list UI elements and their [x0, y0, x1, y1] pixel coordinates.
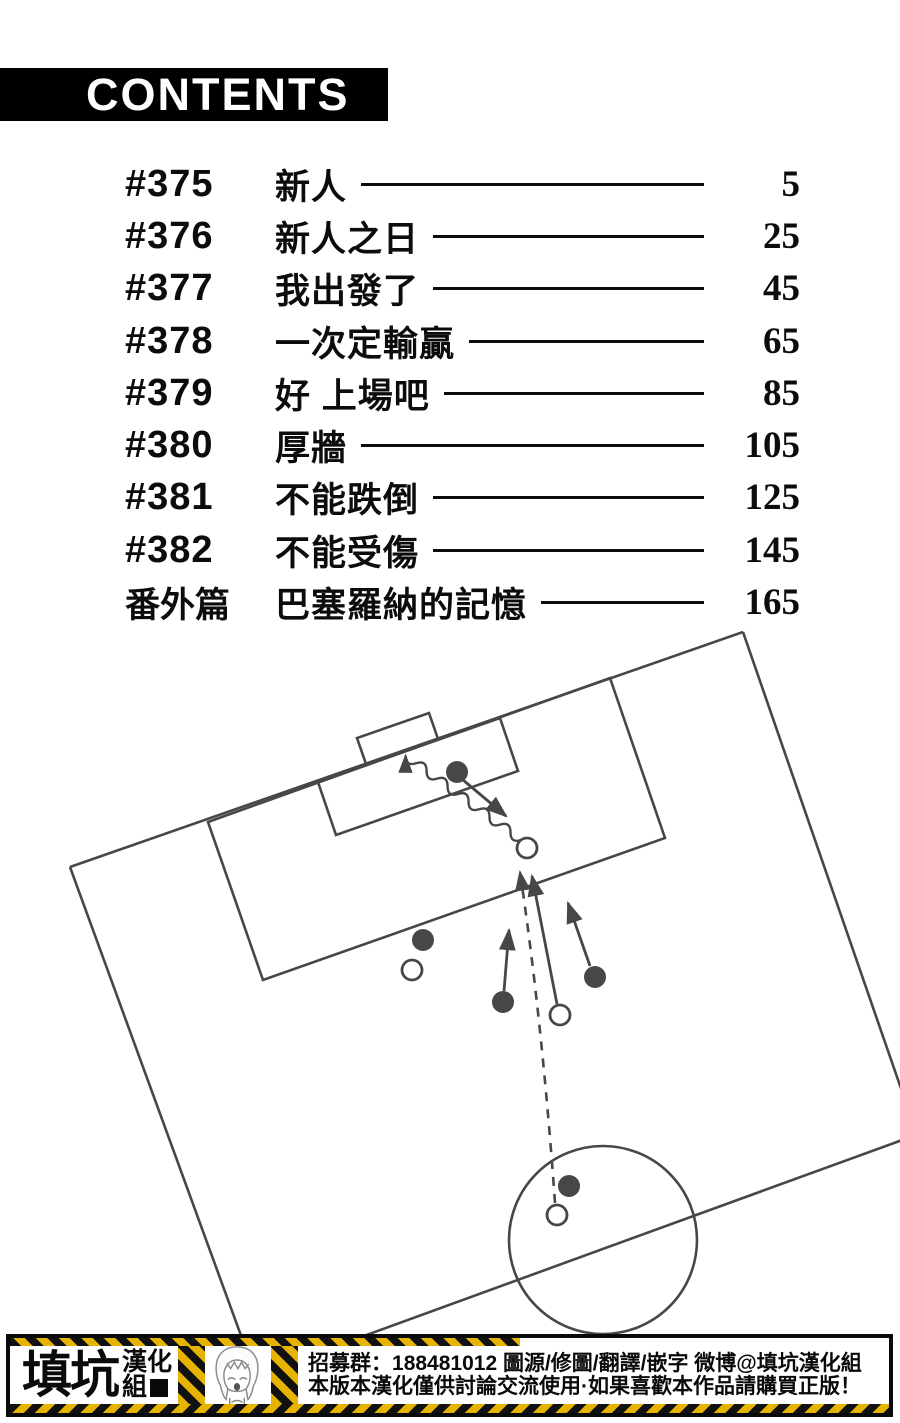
- soccer-tactics-diagram: [0, 618, 900, 1335]
- leader-line: [433, 235, 704, 238]
- table-of-contents: #375 新人 5 #376 新人之日 25 #377 我出發了 45 #378…: [0, 158, 800, 629]
- toc-row: #380 厚牆 105: [0, 419, 800, 471]
- group-logo-main: 填坑: [22, 1350, 118, 1400]
- chapter-title: 新人: [275, 159, 347, 210]
- credit-line-1: 招募群：188481012 圖源/修圖/翻譯/嵌字 微博@填坑漢化組: [308, 1352, 862, 1375]
- group-logo-sub2: 組: [122, 1375, 147, 1400]
- contents-header-bar: CONTENTS: [0, 68, 388, 121]
- page-title: CONTENTS: [86, 69, 350, 121]
- movement-arrows: [403, 752, 590, 1203]
- hazard-stripe-bar: [271, 1346, 298, 1404]
- scanlation-credit-box: 填坑 漢化 組: [6, 1334, 893, 1417]
- toc-row: #377 我出發了 45: [0, 263, 800, 315]
- chapter-number: #376: [125, 215, 275, 258]
- hazard-stripe-bar: [178, 1346, 205, 1404]
- chapter-number: #377: [125, 267, 275, 310]
- leader-line: [433, 549, 704, 552]
- manga-contents-page: CONTENTS #375 新人 5 #376 新人之日 25 #377 我出發…: [0, 0, 900, 1423]
- chapter-page-number: 85: [714, 372, 800, 415]
- chapter-number: #375: [125, 163, 275, 206]
- hazard-stripe-bottom: [10, 1404, 889, 1413]
- chapter-page-number: 45: [714, 267, 800, 310]
- leader-line: [469, 340, 704, 343]
- leader-line: [361, 183, 704, 186]
- chapter-number: #382: [125, 529, 275, 572]
- chapter-title: 一次定輸贏: [275, 316, 455, 367]
- chapter-title: 我出發了: [275, 263, 419, 314]
- toc-row: #381 不能跌倒 125: [0, 472, 800, 524]
- field-lines: [70, 632, 900, 1335]
- toc-row: #382 不能受傷 145: [0, 524, 800, 576]
- chapter-number: #380: [125, 424, 275, 467]
- credit-line-2: 本版本漢化僅供討論交流使用·如果喜歡本作品請購買正版！: [308, 1375, 862, 1398]
- leader-line: [444, 392, 704, 395]
- chapter-title: 不能跌倒: [275, 472, 419, 523]
- leader-line: [433, 287, 704, 290]
- toc-row: #376 新人之日 25: [0, 210, 800, 262]
- chapter-page-number: 25: [714, 215, 800, 258]
- group-logo-sub1: 漢化: [122, 1350, 172, 1375]
- players: [402, 761, 606, 1225]
- leader-line: [361, 444, 704, 447]
- chapter-number: #379: [125, 372, 275, 415]
- toc-row: #378 一次定輸贏 65: [0, 315, 800, 367]
- chapter-number: #378: [125, 320, 275, 363]
- chapter-title: 不能受傷: [275, 525, 419, 576]
- black-square-icon: [150, 1379, 168, 1397]
- toc-row: #379 好 上場吧 85: [0, 367, 800, 419]
- chapter-title: 新人之日: [275, 211, 419, 262]
- leader-line: [541, 601, 704, 604]
- group-logo: 填坑 漢化 組: [22, 1350, 172, 1400]
- chapter-page-number: 105: [714, 424, 800, 467]
- credit-text: 招募群：188481012 圖源/修圖/翻譯/嵌字 微博@填坑漢化組 本版本漢化…: [308, 1352, 862, 1398]
- chapter-page-number: 125: [714, 476, 800, 519]
- toc-row: #375 新人 5: [0, 158, 800, 210]
- chapter-page-number: 5: [714, 163, 800, 206]
- chapter-title: 厚牆: [275, 420, 347, 471]
- chapter-page-number: 65: [714, 320, 800, 363]
- mascot-girl-illustration: [209, 1345, 265, 1405]
- chapter-number: #381: [125, 476, 275, 519]
- leader-line: [433, 496, 704, 499]
- chapter-title: 好 上場吧: [275, 368, 430, 419]
- chapter-page-number: 145: [714, 529, 800, 572]
